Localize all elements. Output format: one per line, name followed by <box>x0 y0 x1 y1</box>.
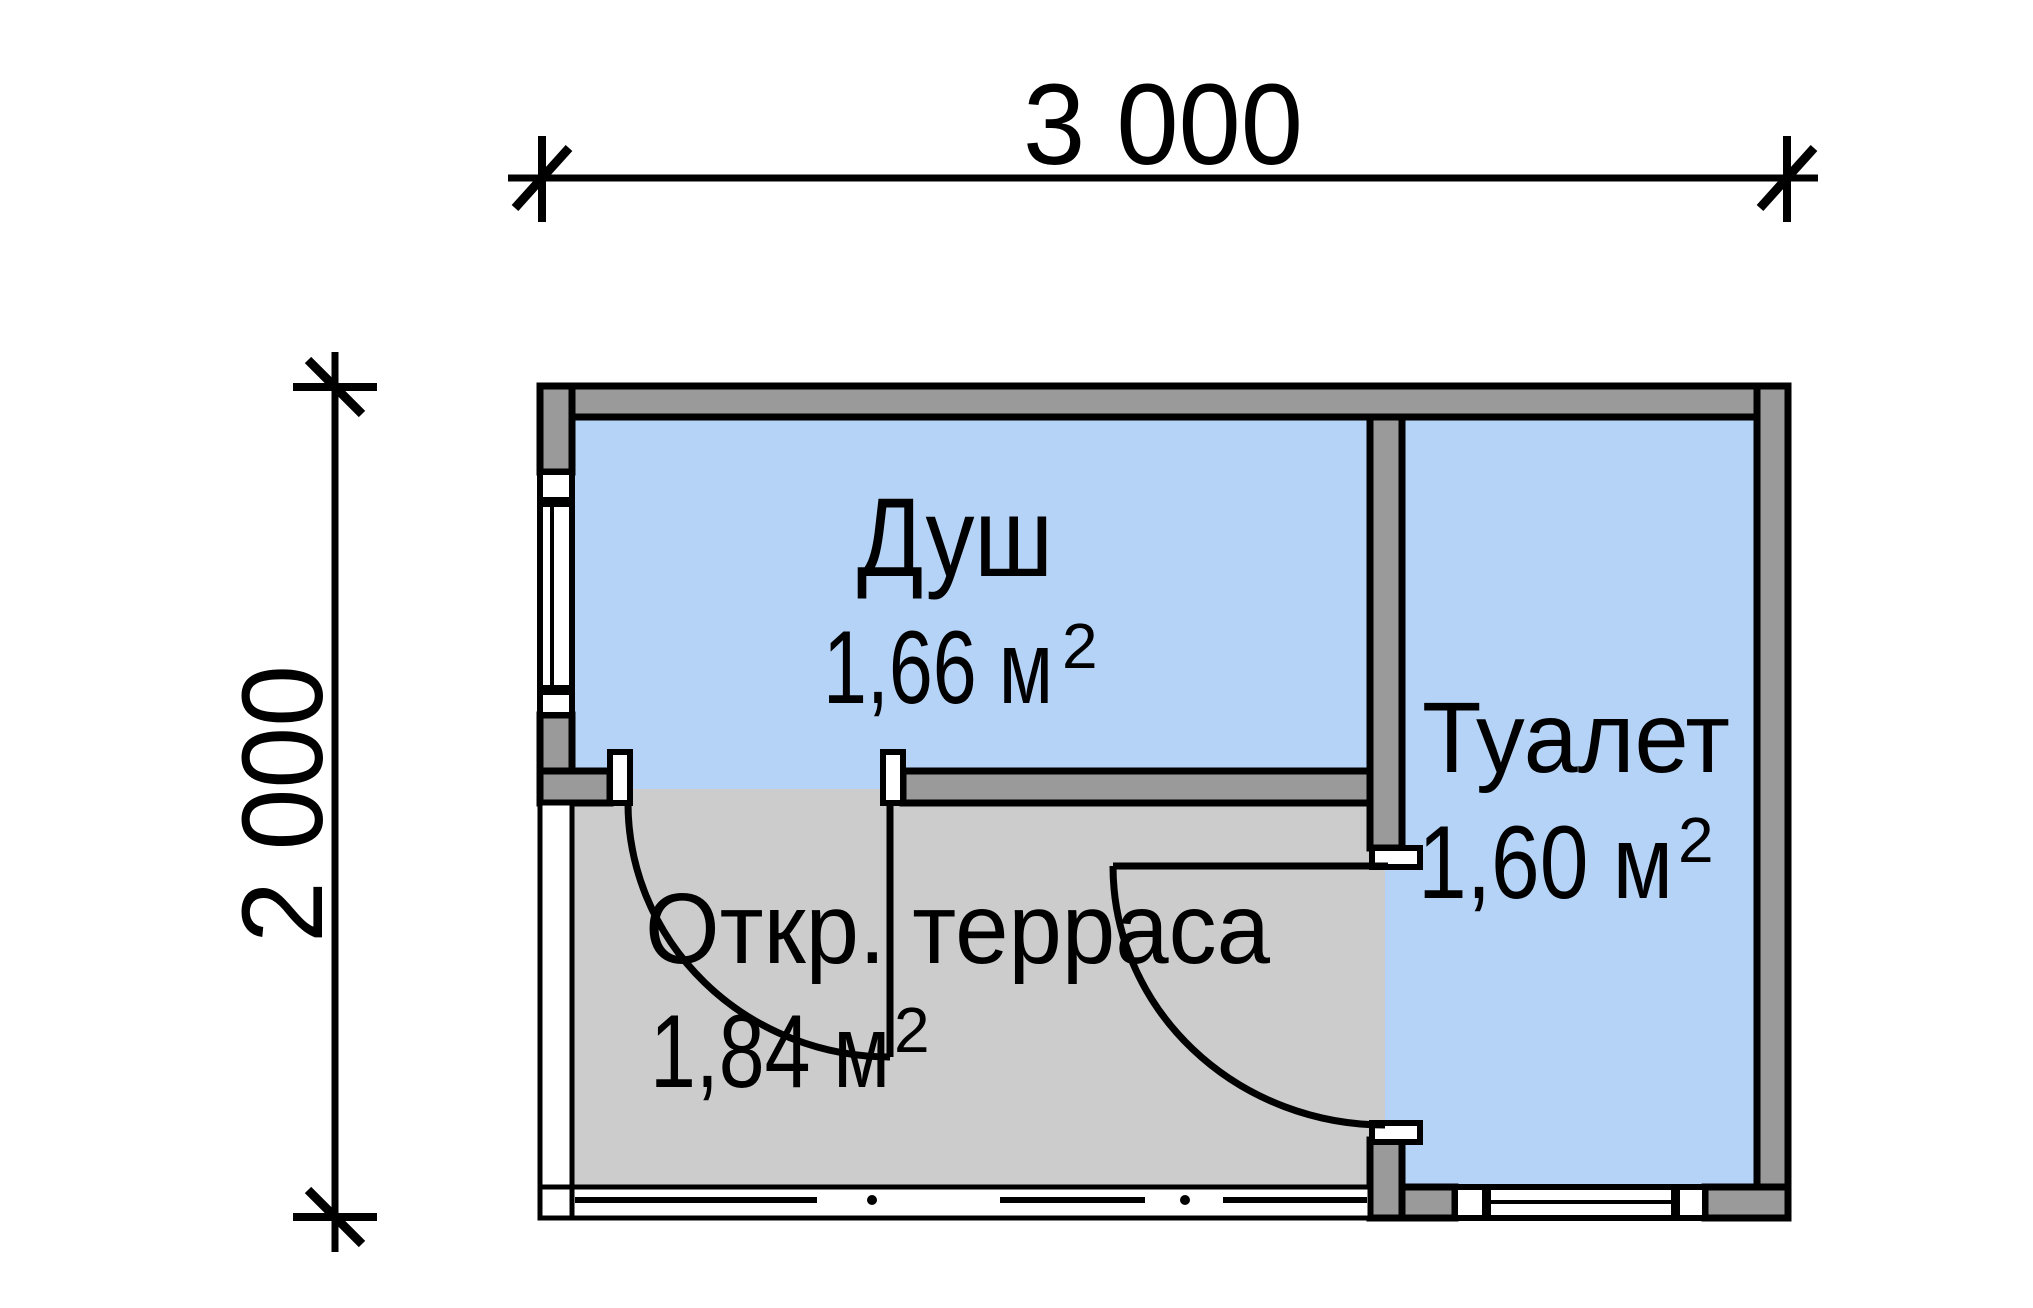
wall-top <box>540 386 1788 417</box>
toilet-room-floor <box>1385 417 1757 1187</box>
toilet-room-area-exponent: 2 <box>1678 804 1714 876</box>
terrace-room-area-exponent: 2 <box>894 994 930 1066</box>
wall-right <box>1757 386 1788 1218</box>
edge-dot <box>867 1195 877 1205</box>
floor-plan-drawing: 3 000 2 000 Душ 1,66 м 2 Туалет 1,60 м 2… <box>0 0 2033 1308</box>
wall-bottom-left-of-window <box>1402 1187 1455 1218</box>
wall-bottom-right-of-window <box>1705 1187 1788 1218</box>
shower-room-area-exponent: 2 <box>1062 610 1098 682</box>
terrace-open-edge-left <box>540 803 572 1187</box>
terrace-floor <box>572 789 1385 1187</box>
window-left-divider-bottom <box>540 685 572 695</box>
shower-room-area: 1,66 м <box>823 610 1053 726</box>
wall-toilet-partition-upper <box>1370 417 1402 848</box>
dimension-height-label: 2 000 <box>219 665 347 943</box>
window-bottom-divider-right <box>1671 1187 1680 1218</box>
dimension-width-label: 3 000 <box>1023 61 1303 189</box>
window-left-divider-top <box>540 497 572 507</box>
shower-room-name: Душ <box>857 475 1053 600</box>
shower-door-jamb-left <box>610 752 630 803</box>
shower-room-floor <box>572 417 1370 789</box>
wall-shower-south-left-segment <box>540 771 610 803</box>
toilet-room-name: Туалет <box>1422 682 1730 794</box>
terrace-room-name: Откр. терраса <box>645 873 1270 985</box>
window-left-frame <box>540 472 572 715</box>
terrace-room-area: 1,84 м <box>650 994 890 1110</box>
window-bottom-divider-left <box>1482 1187 1491 1218</box>
wall-toilet-partition-lower <box>1370 1140 1402 1218</box>
shower-door-jamb-right <box>883 752 903 803</box>
wall-shower-south-right-segment <box>903 771 1370 803</box>
terrace-open-edge-corner <box>540 1187 572 1218</box>
wall-left-above-window <box>540 386 572 472</box>
edge-dot <box>1180 1195 1190 1205</box>
toilet-room-area: 1,60 м <box>1418 805 1673 921</box>
